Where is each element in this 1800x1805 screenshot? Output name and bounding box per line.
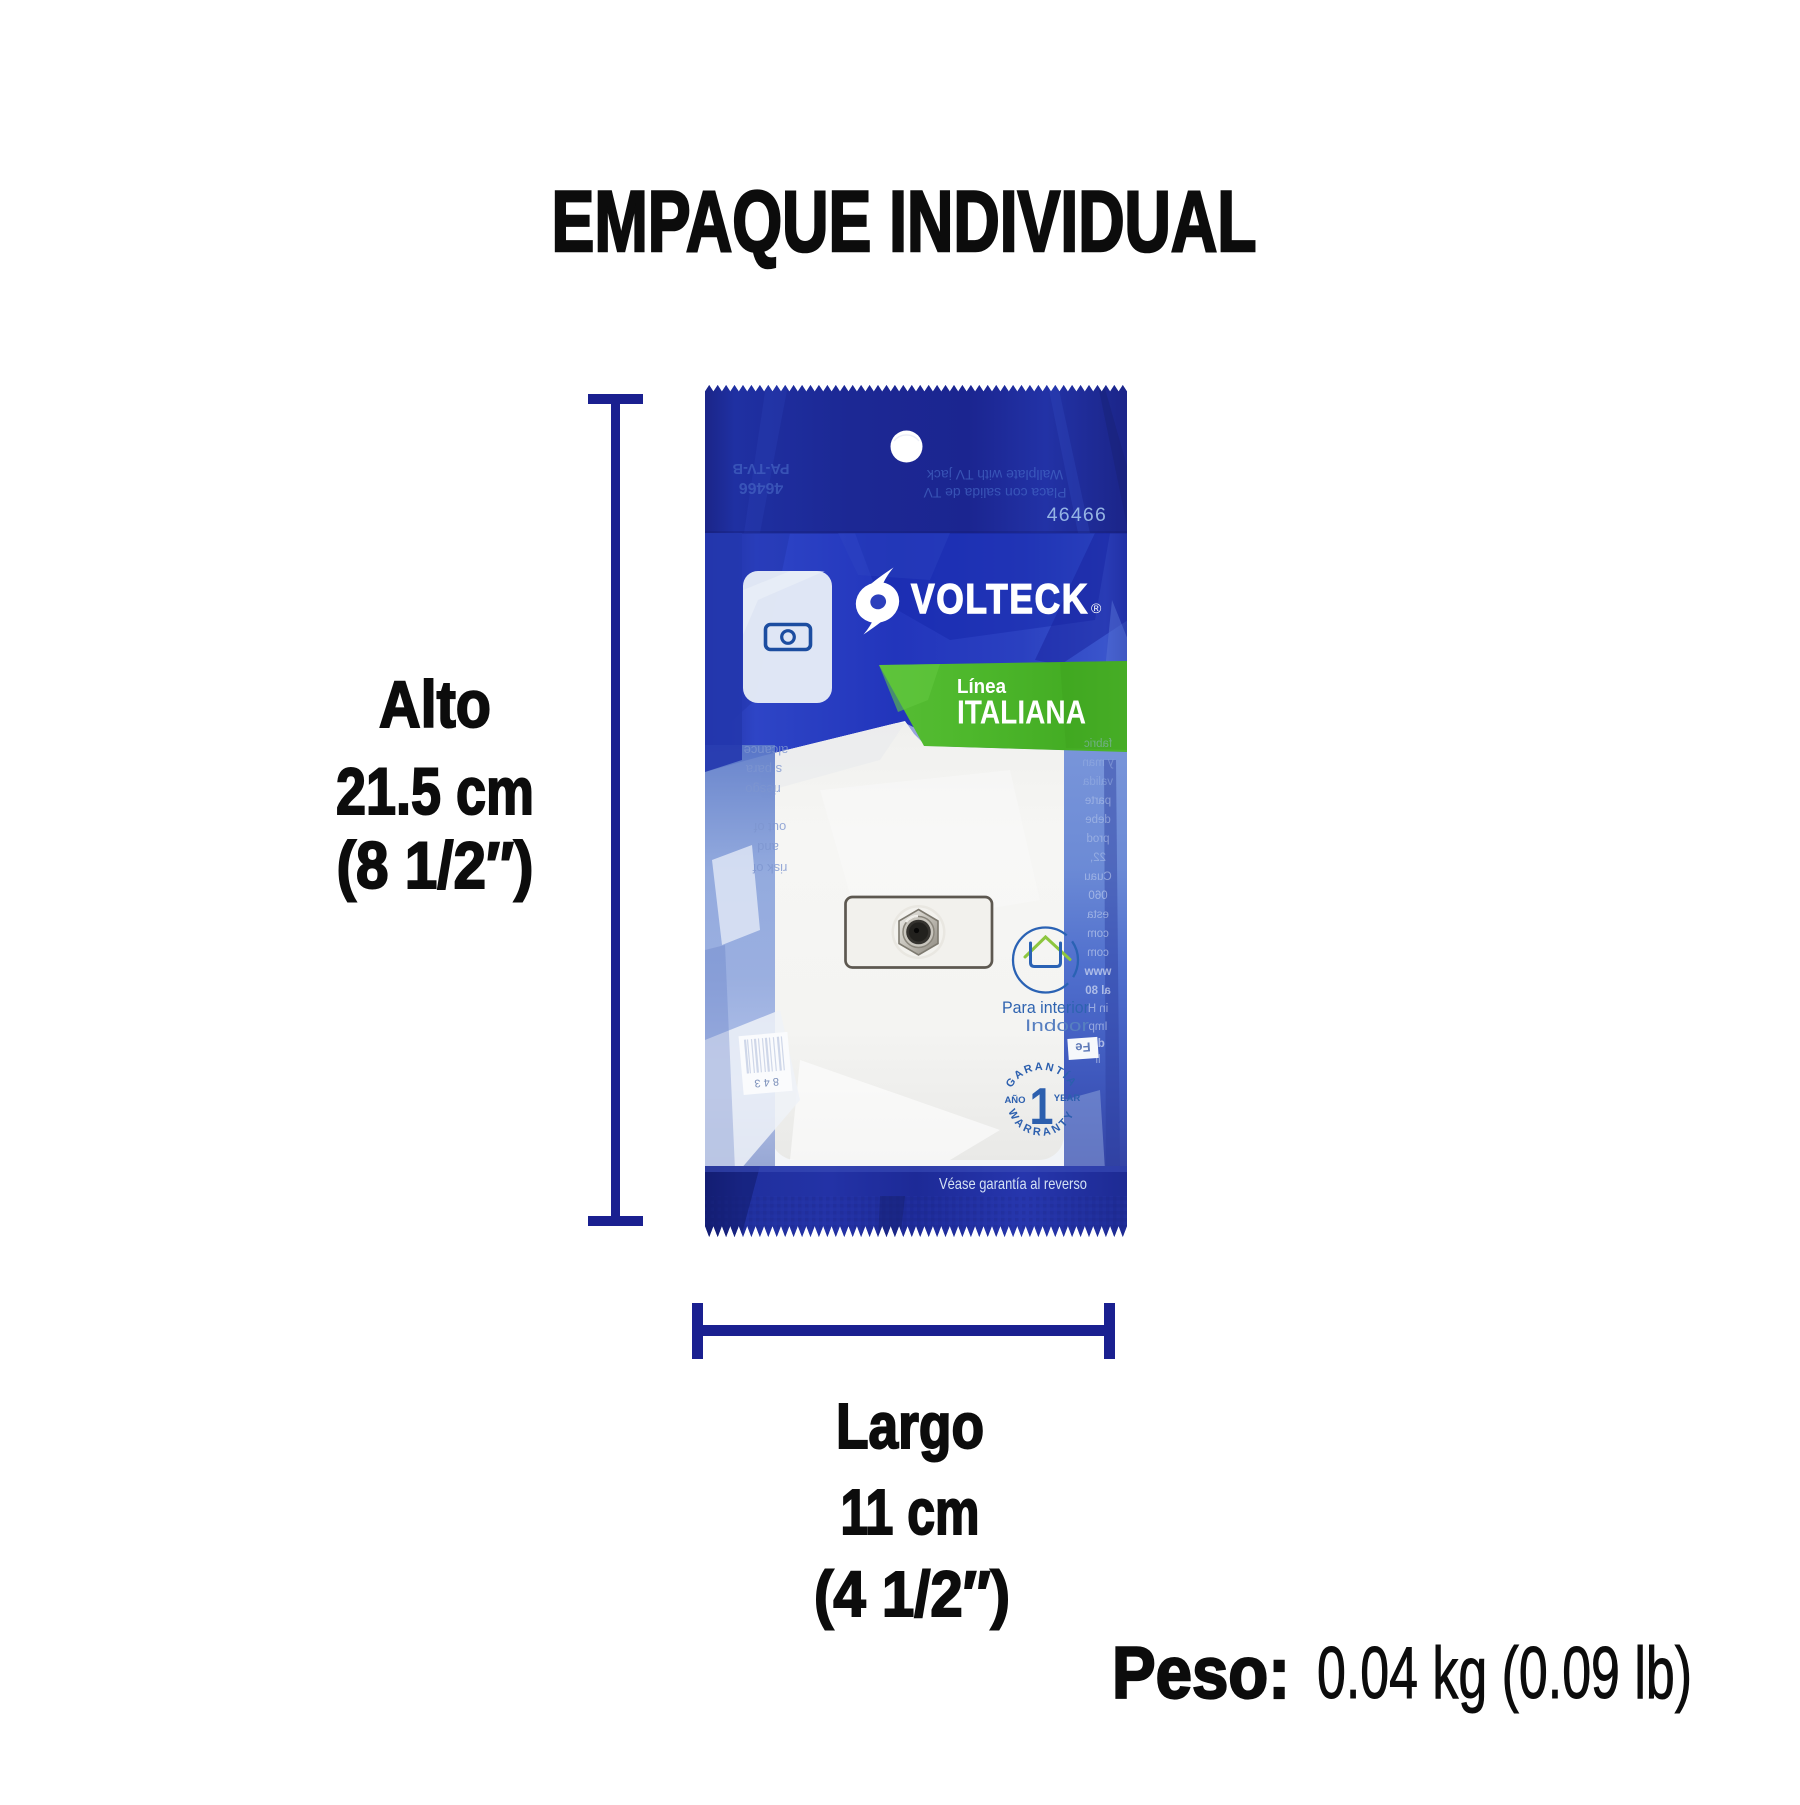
svg-text:®: ® — [1091, 600, 1102, 616]
svg-text:22,: 22, — [1090, 852, 1106, 864]
svg-text:VOLTECK: VOLTECK — [911, 575, 1089, 622]
svg-text:com: com — [1087, 947, 1109, 959]
svg-text:alcance: alcance — [744, 743, 789, 758]
svg-text:in H: in H — [1088, 1003, 1108, 1015]
svg-text:debe: debe — [1085, 814, 1111, 826]
svg-text:Para interior: Para interior — [1002, 998, 1089, 1017]
svg-text:riesgo: riesgo — [745, 782, 780, 797]
svg-text:esta: esta — [1087, 909, 1109, 921]
svg-text:060: 060 — [1088, 890, 1107, 902]
svg-text:Véase garantía al reverso: Véase garantía al reverso — [939, 1176, 1087, 1193]
svg-text:com: com — [1087, 928, 1109, 940]
svg-text:Cuau: Cuau — [1084, 871, 1112, 883]
svg-text:Fe: Fe — [1075, 1039, 1091, 1055]
svg-text:46466: 46466 — [1047, 504, 1107, 526]
svg-text:Imp: Imp — [1088, 1021, 1107, 1033]
svg-text:46466: 46466 — [739, 479, 784, 496]
svg-text:ITALIANA: ITALIANA — [957, 694, 1086, 731]
svg-text:Largo: Largo — [836, 1390, 984, 1462]
svg-text:EMPAQUE INDIVIDUAL: EMPAQUE INDIVIDUAL — [552, 174, 1257, 270]
svg-text:out of: out of — [753, 820, 786, 835]
svg-text:and: and — [757, 840, 779, 855]
svg-text:Peso:: Peso: — [1112, 1633, 1290, 1714]
svg-text:Wallplate with TV jack: Wallplate with TV jack — [926, 467, 1063, 483]
svg-text:21.5 cm: 21.5 cm — [336, 754, 534, 828]
svg-text:s para: s para — [745, 762, 782, 777]
svg-text:fabric: fabric — [1084, 738, 1112, 750]
svg-text:parte: parte — [1085, 795, 1111, 807]
svg-text:PA-TV-B: PA-TV-B — [733, 460, 790, 476]
svg-text:al 80: al 80 — [1085, 985, 1111, 997]
svg-text:(8 1/2″): (8 1/2″) — [337, 828, 534, 902]
svg-text:11 cm: 11 cm — [841, 1476, 980, 1548]
svg-text:www: www — [1085, 966, 1113, 978]
svg-text:8 4 3: 8 4 3 — [754, 1075, 779, 1089]
svg-text:Placa con salida de TV: Placa con salida de TV — [923, 485, 1067, 501]
svg-text:y man: y man — [1082, 757, 1113, 769]
svg-text:Alto: Alto — [379, 667, 491, 741]
svg-text:YEAR: YEAR — [1054, 1093, 1081, 1104]
svg-text:(4 1/2″): (4 1/2″) — [814, 1558, 1010, 1630]
svg-text:prod: prod — [1086, 833, 1109, 845]
svg-text:AÑO: AÑO — [1004, 1095, 1025, 1106]
svg-text:0.04 kg (0.09 lb): 0.04 kg (0.09 lb) — [1317, 1633, 1692, 1714]
svg-text:risk of: risk of — [752, 861, 787, 876]
svg-text:valida: valida — [1082, 776, 1113, 788]
svg-text:Indoor: Indoor — [1025, 1016, 1089, 1035]
